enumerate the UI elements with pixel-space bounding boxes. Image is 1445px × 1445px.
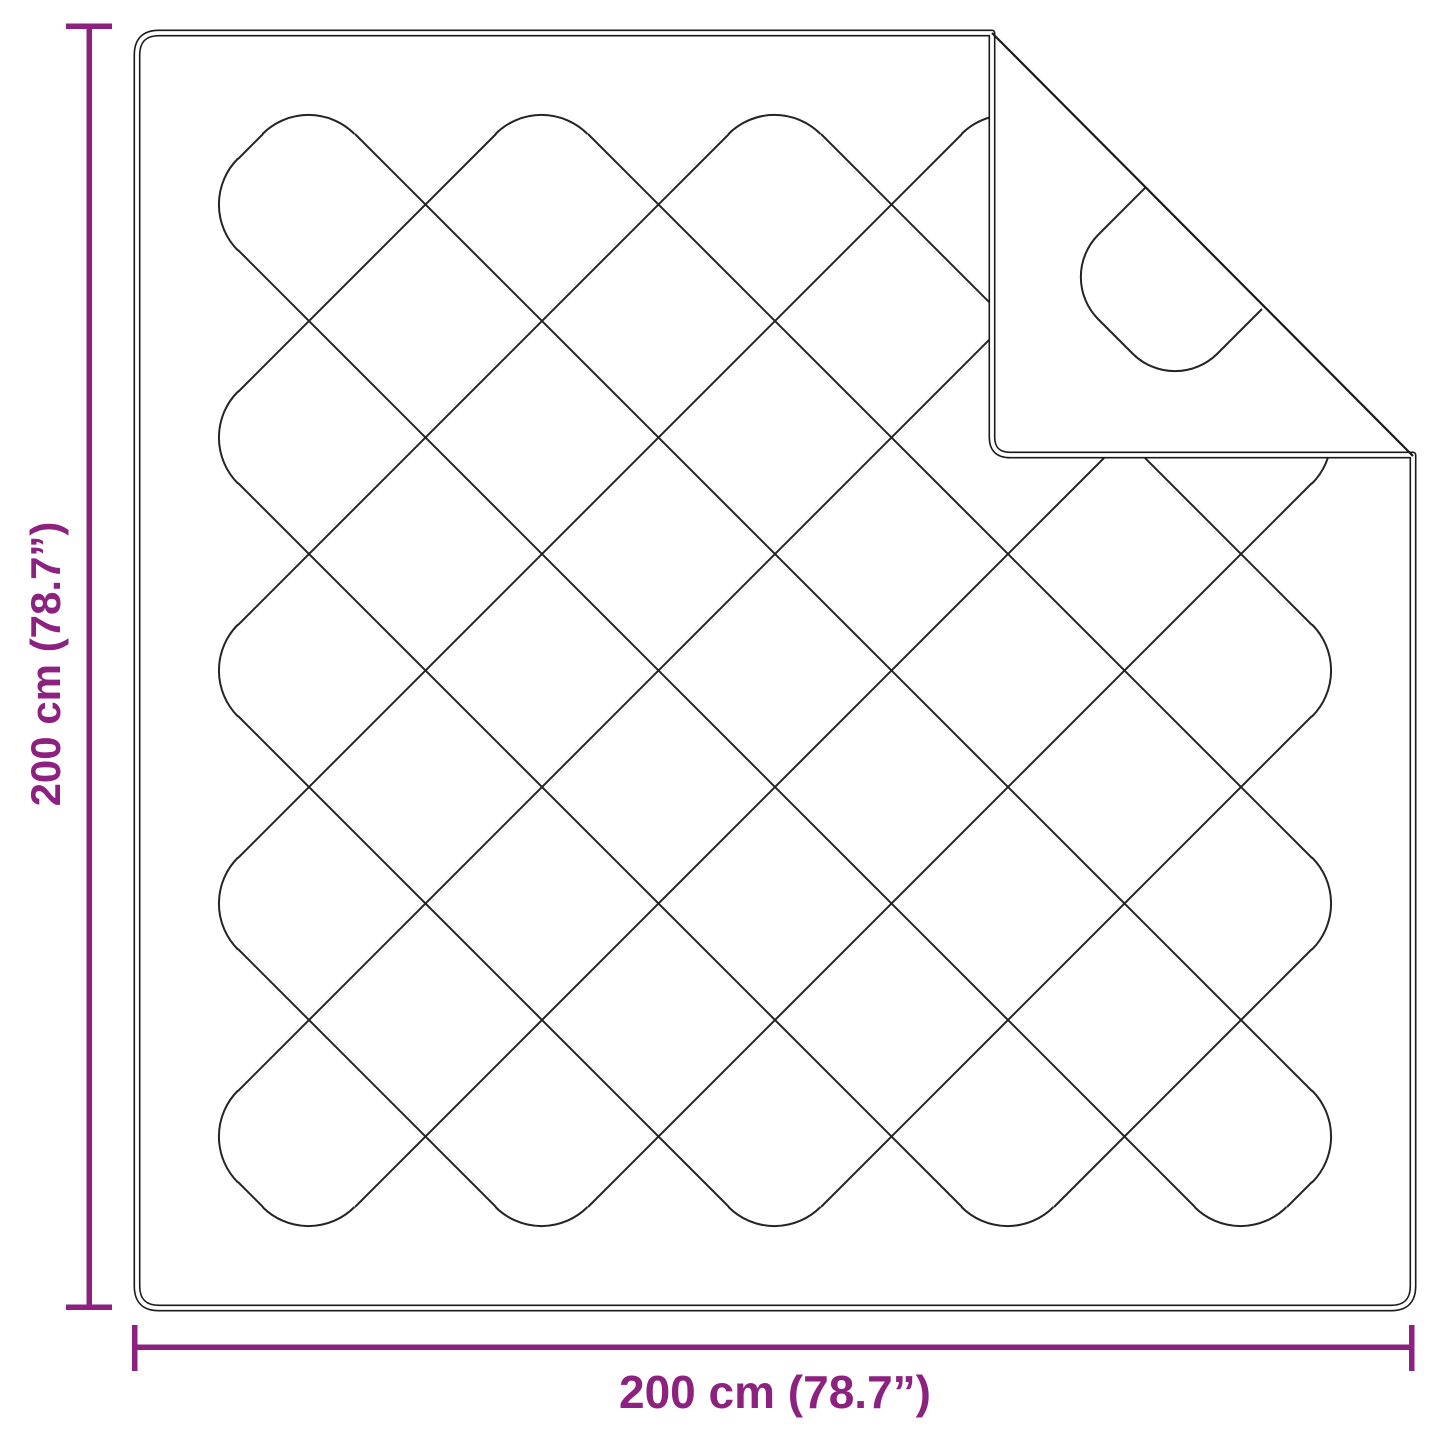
height-dimension-line — [87, 26, 93, 1307]
width-dimension-label: 200 cm (78.7”) — [619, 1366, 931, 1418]
width-dimension-line — [135, 1345, 1412, 1351]
fold-back-stitch — [1081, 188, 1262, 371]
height-dimension: 200 cm (78.7”) — [22, 24, 112, 1311]
diagram-canvas: 200 cm (78.7”) 200 cm (78.7”) — [0, 0, 1445, 1445]
fold-crease-line — [992, 33, 1413, 456]
blanket-outline-inner — [137, 33, 1413, 1308]
width-dimension-cap-right — [1409, 1325, 1415, 1371]
product-dimension-diagram: 200 cm (78.7”) 200 cm (78.7”) — [0, 0, 1445, 1445]
height-dimension-cap-bottom — [66, 1305, 112, 1311]
height-dimension-label: 200 cm (78.7”) — [22, 522, 69, 807]
blanket-outline — [137, 33, 1413, 1308]
quilt-stitch-pattern — [219, 115, 1331, 1226]
width-dimension: 200 cm (78.7”) — [132, 1325, 1415, 1418]
